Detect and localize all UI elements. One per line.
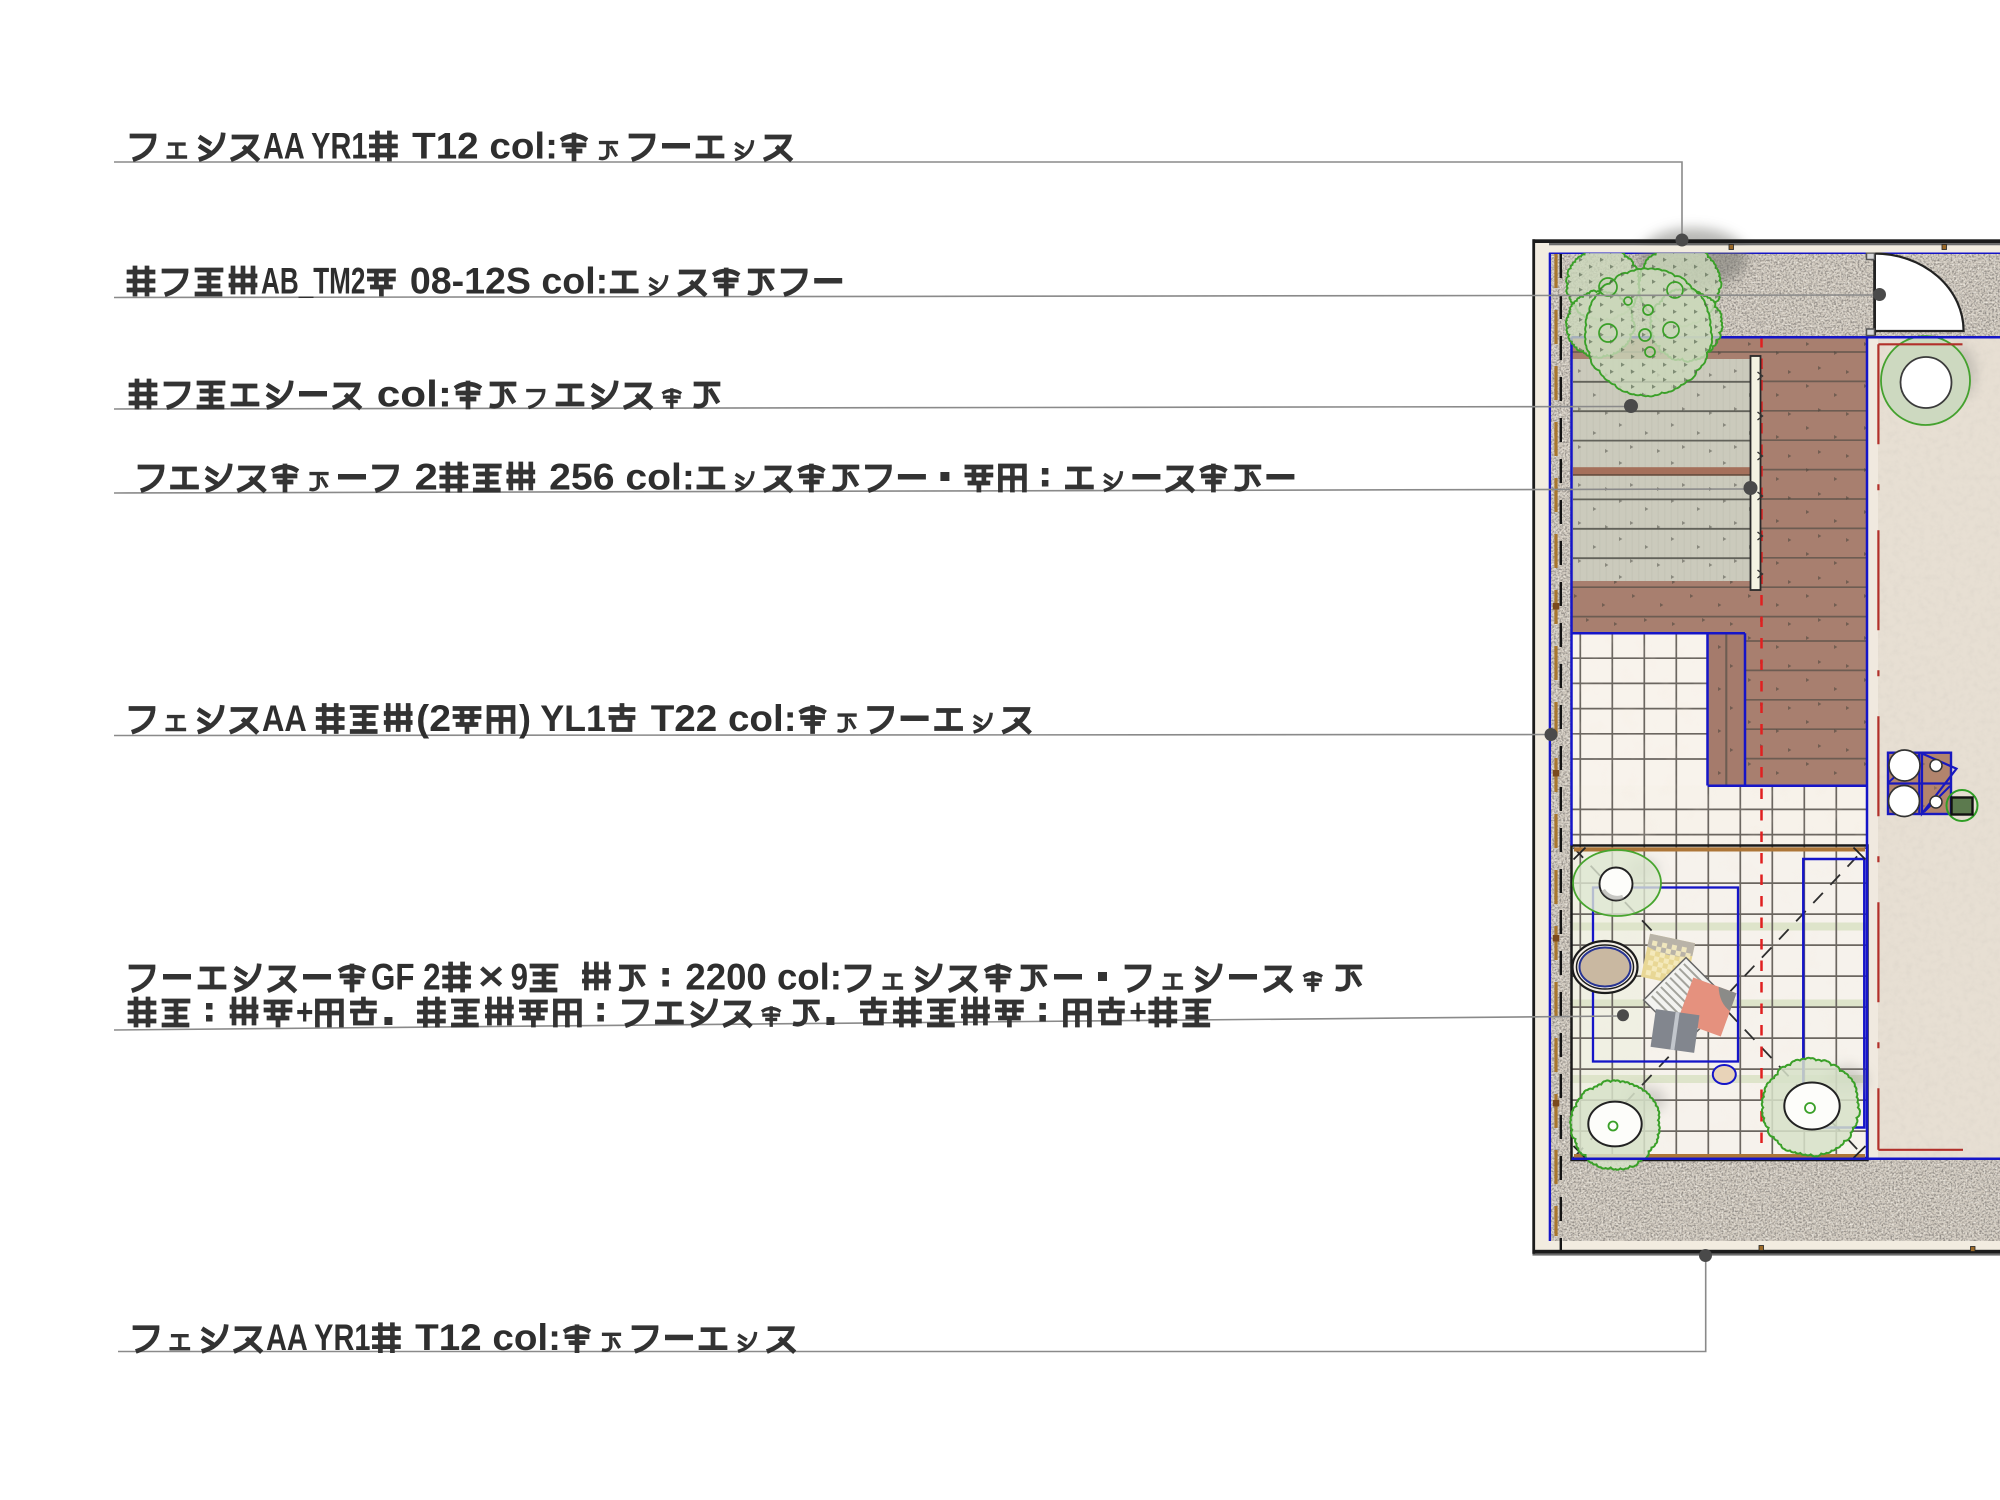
svg-text:GF 2: GF 2: [371, 957, 441, 998]
svg-text:+: +: [1129, 992, 1146, 1033]
svg-text:256 col:: 256 col:: [538, 457, 695, 498]
svg-text:08-12S col:: 08-12S col:: [399, 261, 608, 302]
svg-text:T12 col:: T12 col:: [404, 1317, 561, 1358]
svg-text:+: +: [296, 992, 313, 1033]
svg-text:AA: AA: [262, 698, 314, 739]
svg-text:AA YR1: AA YR1: [263, 126, 367, 167]
svg-text:T12 col:: T12 col:: [401, 126, 558, 167]
svg-text:2200 col:: 2200 col:: [685, 957, 842, 998]
svg-text:AB_TM2: AB_TM2: [261, 261, 365, 302]
svg-text:(2: (2: [416, 698, 451, 739]
svg-text:9: 9: [511, 957, 528, 998]
svg-text:T22 col:: T22 col:: [640, 698, 797, 739]
svg-text:AA YR1: AA YR1: [266, 1317, 370, 1358]
svg-text:) YL1: ) YL1: [519, 698, 606, 739]
svg-text:2: 2: [403, 457, 438, 498]
svg-text:col:: col:: [365, 374, 452, 415]
